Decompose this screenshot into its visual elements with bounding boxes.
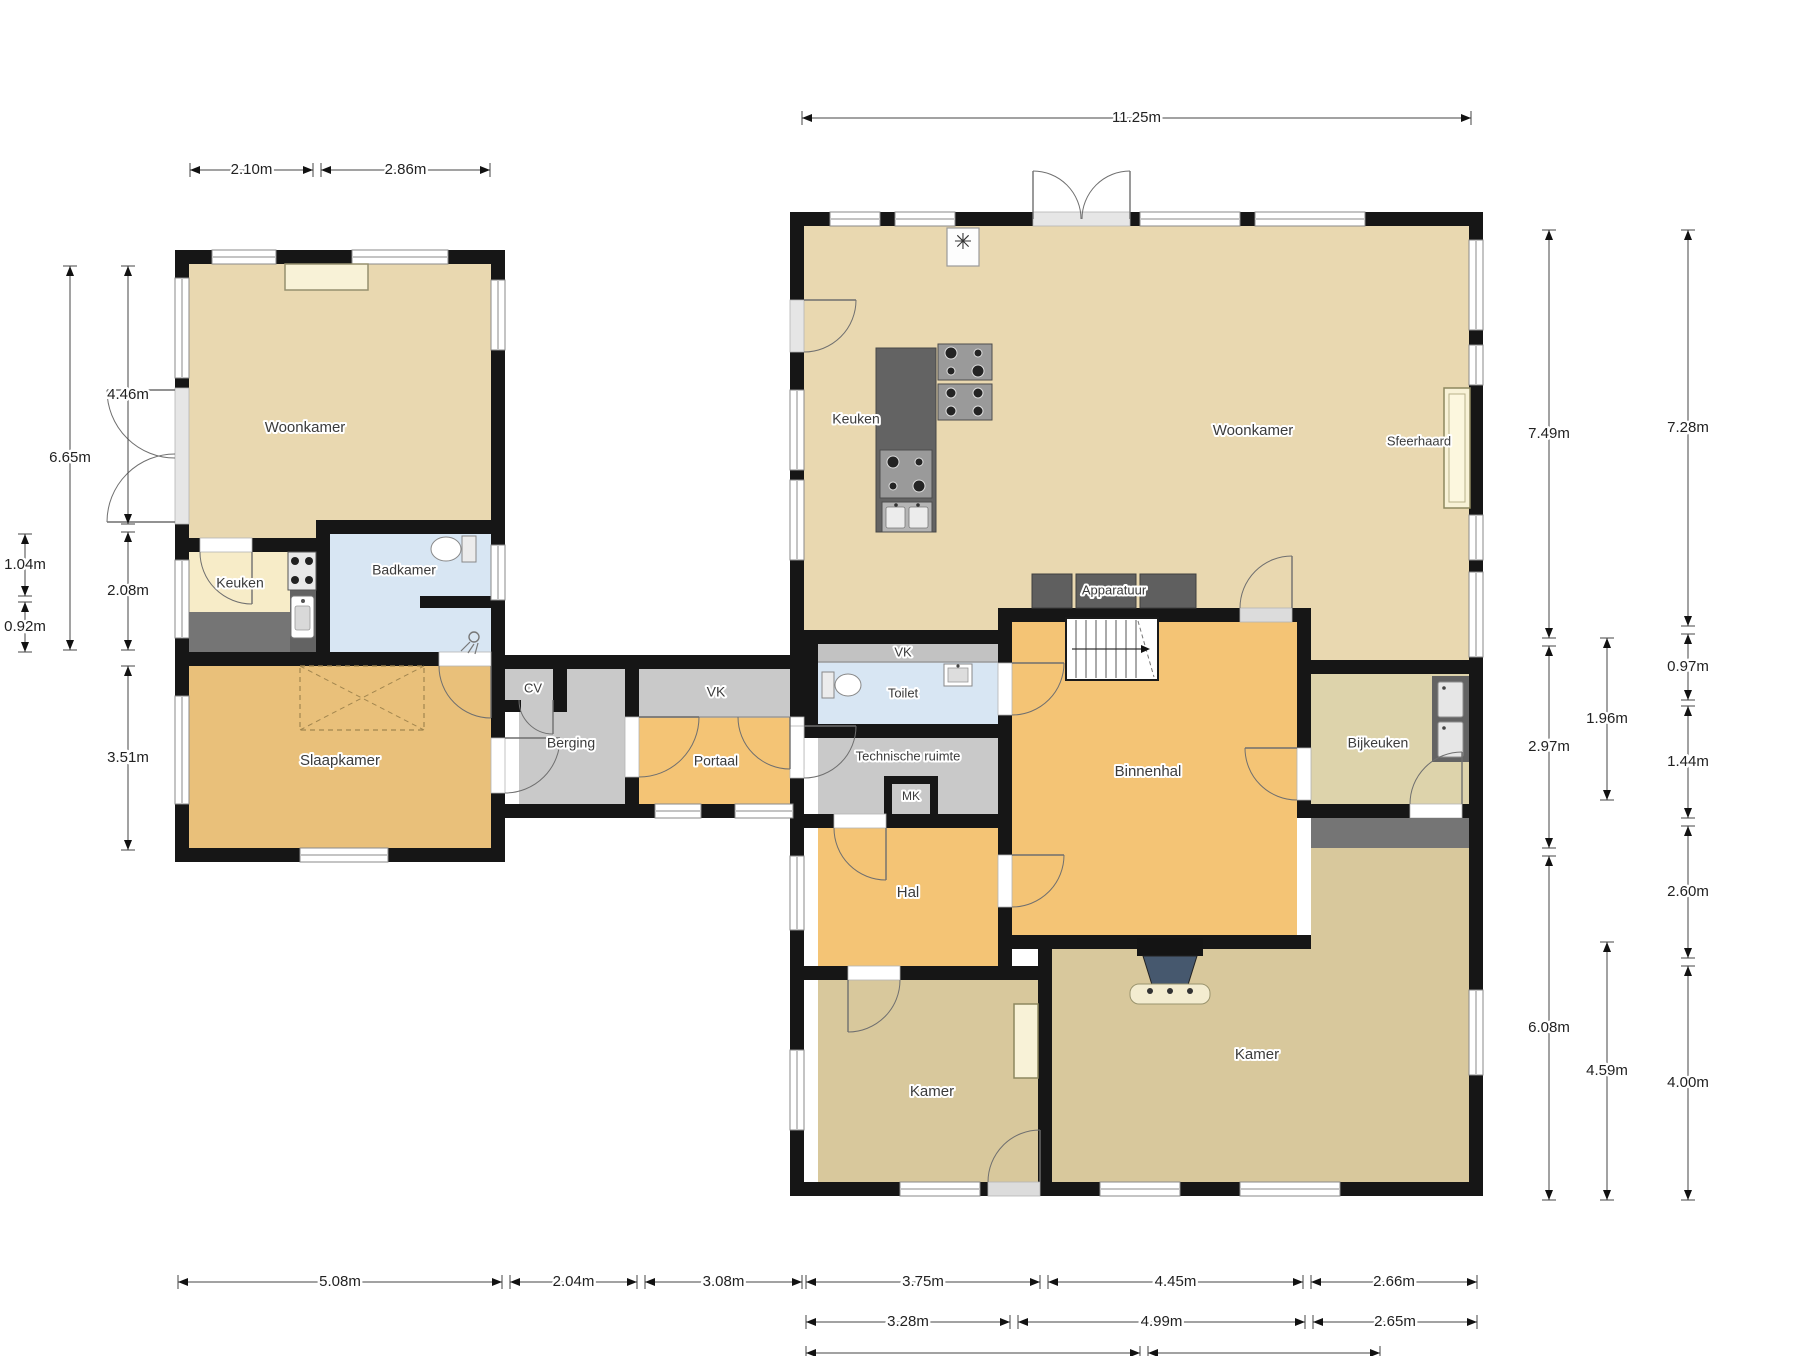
bijkeuken-counter-3 — [1442, 686, 1446, 690]
toilet-left — [462, 536, 476, 562]
floor-plan-canvas: ✳WoonkamerKeukenBadkamerSlaapkamerCVBerg… — [0, 0, 1814, 1356]
label-hal: Hal — [897, 884, 920, 901]
dim-h-5.08m-label: 5.08m — [319, 1273, 361, 1290]
toilet-sink-2 — [956, 664, 959, 667]
wardrobe — [1014, 1004, 1038, 1078]
dim-v-2.08m-arrow-a — [124, 532, 132, 542]
label-cv: CV — [524, 680, 542, 695]
label-bijkeuken: Bijkeuken — [1348, 735, 1409, 751]
wall-18 — [790, 212, 804, 1196]
island-burners-b-3 — [946, 406, 956, 416]
dim-h-4.99m-arrow-a — [1018, 1318, 1028, 1326]
dim-v-4.46m-label: 4.46m — [107, 386, 149, 403]
label-keuken: Keuken — [832, 411, 879, 427]
floor-plan-page: ✳WoonkamerKeukenBadkamerSlaapkamerCVBerg… — [0, 0, 1814, 1356]
label-woonkamer: Woonkamer — [1213, 422, 1294, 439]
wall-15 — [625, 777, 639, 818]
dim-h-3.28m-label: 3.28m — [887, 1313, 929, 1330]
door-opening-15 — [175, 388, 189, 524]
label-slaapkamer: Slaapkamer — [300, 752, 380, 769]
toilet-right — [822, 672, 834, 698]
dim-h-11.25m-arrow-b — [1461, 114, 1471, 122]
dim-h-2.10m-arrow-a — [190, 166, 200, 174]
label-technische-ruimte: Technische ruimte — [856, 748, 961, 763]
dim-v-4.46m-arrow-a — [124, 266, 132, 276]
dim-v-0.92m-arrow-b — [21, 642, 29, 652]
dim-h-2.86m-label: 2.86m — [385, 161, 427, 178]
dim-v-3.51m-label: 3.51m — [107, 749, 149, 766]
dim-h-2.86m-arrow-b — [480, 166, 490, 174]
apparatuur-bar-2 — [1140, 574, 1196, 608]
dim-v-4.00m-arrow-b — [1684, 1190, 1692, 1200]
toilet-left-1 — [431, 537, 461, 561]
dim-v-1.04m-arrow-b — [21, 586, 29, 596]
dim-h-5.08m-arrow-b — [492, 1278, 502, 1286]
hearth-fixture — [1137, 938, 1203, 956]
door-opening-8 — [998, 855, 1012, 907]
wall-8 — [175, 652, 440, 666]
dim-v-2.97m-arrow-b — [1545, 838, 1553, 848]
dim-h-2.65m-label: 2.65m — [1374, 1313, 1416, 1330]
dim-v-1.04m-label: 1.04m — [4, 556, 46, 573]
dim-h-4.45m-label: 4.45m — [1155, 1273, 1197, 1290]
toilet-sink-1 — [948, 668, 968, 682]
dim-v-0.97m-label: 0.97m — [1667, 658, 1709, 675]
room-kamer-right-annex — [1311, 848, 1469, 949]
dim-h-11.25m-arrow-a — [802, 114, 812, 122]
dim-h-13-arrow-b — [1370, 1349, 1380, 1356]
door-opening-7 — [998, 663, 1012, 715]
wall-24 — [790, 814, 1012, 828]
room-kamer-left — [818, 980, 1038, 1182]
label-keuken: Keuken — [216, 575, 263, 591]
bijkeuken-counter-4 — [1442, 726, 1446, 730]
dim-v-2.60m-label: 2.60m — [1667, 883, 1709, 900]
wall-21 — [804, 630, 818, 724]
dim-v-1.04m-arrow-a — [21, 534, 29, 544]
door-opening-10 — [1297, 748, 1311, 800]
label-berging: Berging — [547, 735, 595, 751]
dim-v-3.51m-arrow-b — [124, 840, 132, 850]
door-opening-5 — [790, 300, 804, 352]
dim-v-0.92m-arrow-a — [21, 602, 29, 612]
stove-left-1 — [291, 557, 299, 565]
island-burners-a-3 — [947, 367, 955, 375]
door-opening-11 — [1410, 804, 1462, 818]
dim-v-1.96m-label: 1.96m — [1586, 710, 1628, 727]
dim-v-7.28m-label: 7.28m — [1667, 419, 1709, 436]
dim-v-0.97m-arrow-a — [1684, 634, 1692, 644]
island-sink-1 — [886, 507, 905, 528]
stove-left-4 — [305, 576, 313, 584]
dim-v-2.08m-arrow-b — [124, 640, 132, 650]
dim-v-4.59m-label: 4.59m — [1586, 1062, 1628, 1079]
island-sink-4 — [916, 503, 920, 507]
island-burners-c-4 — [913, 480, 925, 492]
dim-v-6.08m-label: 6.08m — [1528, 1019, 1570, 1036]
dim-h-4.45m-arrow-b — [1293, 1278, 1303, 1286]
dim-v-7.28m-arrow-a — [1684, 230, 1692, 240]
dim-h-13-arrow-a — [1148, 1349, 1158, 1356]
dim-h-2.66m-arrow-a — [1311, 1278, 1321, 1286]
dim-h-11.25m-label: 11.25m — [1112, 109, 1161, 126]
dim-v-7.49m-arrow-b — [1545, 628, 1553, 638]
label-kamer: Kamer — [910, 1083, 954, 1100]
entry-mat — [189, 612, 290, 652]
stove-left — [288, 552, 316, 590]
dim-v-3.51m-arrow-a — [124, 666, 132, 676]
dim-h-2.04m-arrow-b — [627, 1278, 637, 1286]
dim-h-2.10m-arrow-b — [303, 166, 313, 174]
island-burners-a-1 — [945, 347, 957, 359]
dim-v-2.08m-label: 2.08m — [107, 582, 149, 599]
door-opening-12 — [834, 814, 886, 828]
room-kamer-right — [1052, 949, 1469, 1182]
label-woonkamer: Woonkamer — [265, 419, 346, 436]
dim-v-6.65m-arrow-b — [66, 640, 74, 650]
dim-h-3.08m-arrow-a — [645, 1278, 655, 1286]
dim-v-6.65m-arrow-a — [66, 266, 74, 276]
island-burners-b-4 — [973, 406, 983, 416]
island-burners-a-2 — [974, 349, 982, 357]
wall-10 — [505, 655, 804, 669]
sink-left-1 — [295, 606, 310, 630]
label-kamer: Kamer — [1235, 1046, 1279, 1063]
dim-h-3.75m-arrow-b — [1030, 1278, 1040, 1286]
dim-h-3.75m-label: 3.75m — [902, 1273, 944, 1290]
dim-v-1.44m-arrow-b — [1684, 808, 1692, 818]
dim-h-2.66m-label: 2.66m — [1373, 1273, 1415, 1290]
stove-left-2 — [305, 557, 313, 565]
door-opening-2 — [491, 738, 505, 793]
wall-34 — [884, 776, 938, 784]
hearth-fixture-1 — [1143, 956, 1197, 988]
dim-v-2.60m-arrow-b — [1684, 948, 1692, 958]
dim-v-4.00m-label: 4.00m — [1667, 1074, 1709, 1091]
door-french-left-bottom-swing-arc — [107, 454, 175, 522]
dim-v-0.97m-arrow-b — [1684, 690, 1692, 700]
door-opening-1 — [439, 652, 491, 666]
toilet-right-1 — [835, 674, 861, 696]
sink-left-2 — [301, 599, 305, 603]
door-opening-9 — [1240, 608, 1292, 622]
dim-h-2.04m-arrow-a — [510, 1278, 520, 1286]
wall-20 — [790, 630, 998, 644]
dim-h-2.10m-label: 2.10m — [231, 161, 273, 178]
door-opening-13 — [848, 966, 900, 980]
sfeerhaard-box-1 — [1449, 394, 1465, 502]
label-badkamer: Badkamer — [372, 562, 436, 578]
wall-12 — [553, 655, 567, 712]
island-burners-b — [938, 384, 992, 420]
door-opening-14 — [988, 1182, 1040, 1196]
label-apparatuur: Apparatuur — [1082, 582, 1147, 597]
dim-h-3.28m-arrow-a — [806, 1318, 816, 1326]
hearth-fixture-3 — [1147, 988, 1153, 994]
wall-16 — [790, 212, 1483, 226]
dim-v-1.44m-arrow-a — [1684, 706, 1692, 716]
island-burners-b-1 — [946, 388, 956, 398]
wall-7 — [316, 520, 330, 652]
dim-v-4.00m-arrow-a — [1684, 966, 1692, 976]
label-toilet: Toilet — [888, 685, 919, 700]
dim-h-12-arrow-b — [1130, 1349, 1140, 1356]
dim-h-2.04m-label: 2.04m — [553, 1273, 595, 1290]
door-opening-0 — [200, 538, 252, 552]
dim-h-12-arrow-a — [806, 1349, 816, 1356]
dim-v-7.49m-label: 7.49m — [1528, 425, 1570, 442]
wall-28 — [1297, 660, 1469, 674]
dim-h-3.75m-arrow-a — [806, 1278, 816, 1286]
dim-v-1.96m-arrow-b — [1603, 790, 1611, 800]
dim-v-6.65m-label: 6.65m — [49, 449, 91, 466]
hearth-fixture-4 — [1167, 988, 1173, 994]
dim-v-7.28m-arrow-b — [1684, 616, 1692, 626]
dim-h-2.65m-arrow-a — [1313, 1318, 1323, 1326]
dim-v-1.96m-arrow-a — [1603, 638, 1611, 648]
dim-h-4.99m-arrow-b — [1295, 1318, 1305, 1326]
dim-h-2.86m-arrow-a — [321, 166, 331, 174]
door-opening-6 — [790, 726, 804, 778]
dim-v-0.92m-label: 0.92m — [4, 618, 46, 635]
wall-14 — [625, 655, 639, 717]
island-burners-a-4 — [972, 365, 984, 377]
dim-v-2.97m-arrow-a — [1545, 646, 1553, 656]
wall-4 — [316, 520, 491, 534]
dim-v-2.97m-label: 2.97m — [1528, 738, 1570, 755]
dim-h-4.99m-label: 4.99m — [1141, 1313, 1183, 1330]
dim-h-3.08m-label: 3.08m — [703, 1273, 745, 1290]
dim-v-7.49m-arrow-a — [1545, 230, 1553, 240]
dim-h-2.65m-arrow-b — [1467, 1318, 1477, 1326]
label-mk: MK — [902, 789, 920, 803]
dim-h-3.08m-arrow-b — [792, 1278, 802, 1286]
label-vk: VK — [707, 684, 726, 700]
dim-v-4.59m-arrow-a — [1603, 942, 1611, 952]
island-burners-c — [880, 450, 932, 498]
door-opening-3 — [625, 717, 639, 777]
stove-left-3 — [291, 576, 299, 584]
wall-5 — [175, 538, 200, 552]
dim-h-5.08m-arrow-a — [178, 1278, 188, 1286]
dim-v-6.08m-arrow-b — [1545, 1190, 1553, 1200]
bijkeuken-counter-1 — [1438, 682, 1463, 717]
dim-h-2.66m-arrow-b — [1467, 1278, 1477, 1286]
label-portaal: Portaal — [694, 753, 738, 769]
label-binnenhal: Binnenhal — [1115, 763, 1182, 780]
island-sink-2 — [909, 507, 928, 528]
island-burners-c-1 — [887, 456, 899, 468]
label-vk: VK — [894, 644, 912, 659]
island-sink-3 — [894, 503, 898, 507]
dim-h-4.45m-arrow-a — [1048, 1278, 1058, 1286]
bijkeuken-dark-strip — [1311, 818, 1469, 848]
dim-v-1.44m-label: 1.44m — [1667, 753, 1709, 770]
wall-25 — [790, 966, 1052, 980]
island-burners-b-2 — [973, 388, 983, 398]
window-sill-box — [285, 264, 368, 290]
asterisk-box-1: ✳ — [954, 229, 972, 254]
wall-9 — [420, 596, 491, 608]
island-burners-c-3 — [889, 482, 897, 490]
apparatuur-bar — [1032, 574, 1072, 608]
dim-v-2.60m-arrow-a — [1684, 826, 1692, 836]
dim-h-3.28m-arrow-b — [1000, 1318, 1010, 1326]
label-sfeerhaard: Sfeerhaard — [1387, 433, 1451, 448]
dim-v-6.08m-arrow-a — [1545, 856, 1553, 866]
dim-v-4.59m-arrow-b — [1603, 1190, 1611, 1200]
hearth-fixture-5 — [1187, 988, 1193, 994]
island-burners-c-2 — [915, 458, 923, 466]
